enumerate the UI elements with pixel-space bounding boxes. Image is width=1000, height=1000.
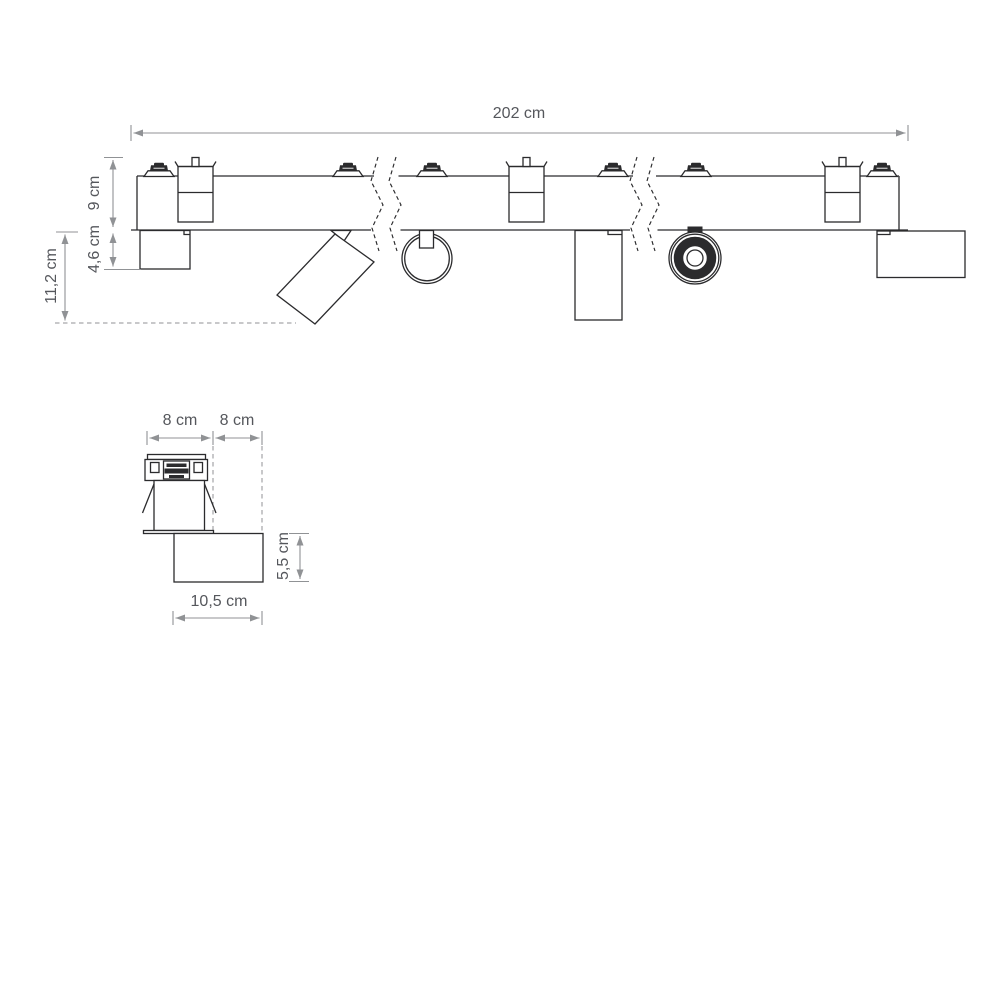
ring-fixture-side xyxy=(402,231,452,284)
spring-clip xyxy=(143,484,155,513)
driver-box-right xyxy=(877,231,965,278)
mount-clip xyxy=(867,163,897,177)
fixture-top-cap xyxy=(148,455,206,460)
dimension-label-detail-right-width: 8 cm xyxy=(220,412,255,429)
break-mark xyxy=(371,157,401,251)
mount-clip xyxy=(417,163,447,177)
mount-clip xyxy=(598,163,628,177)
mount-clip xyxy=(144,163,174,177)
track-connector xyxy=(822,158,863,223)
dimension-label-driver-width: 10,5 cm xyxy=(191,593,248,610)
main-side-view: 202 cm xyxy=(43,105,965,324)
dimension-label-track-length: 202 cm xyxy=(493,105,545,122)
track-connector xyxy=(506,158,547,223)
driver-box-detail xyxy=(174,534,263,583)
dimension-recess-height: 4,6 cm xyxy=(86,225,141,273)
dimension-driver-width: 10,5 cm xyxy=(173,593,262,625)
dimension-label-recess-height: 4,6 cm xyxy=(86,225,103,273)
dimension-track-length: 202 cm xyxy=(131,105,908,141)
fixture-body xyxy=(154,481,205,531)
mount-clip xyxy=(333,163,363,177)
dimension-label-detail-left-width: 8 cm xyxy=(163,412,198,429)
break-mark xyxy=(630,157,659,251)
dimension-label-driver-height: 5,5 cm xyxy=(275,532,292,580)
track-connectors xyxy=(175,158,863,223)
spot-fixture-front xyxy=(669,227,721,285)
dimension-label-total-depth: 11,2 cm xyxy=(43,248,60,304)
recessed-fixture-detail xyxy=(143,455,217,534)
mount-clip xyxy=(681,163,711,177)
track-connector xyxy=(175,158,216,223)
fixtures xyxy=(140,227,965,325)
detail-front-view: 8 cm 8 cm 5,5 xyxy=(143,412,310,625)
dimension-label-track-height: 9 cm xyxy=(86,176,103,211)
technical-drawing-page: 202 cm xyxy=(0,0,1000,1000)
dimension-track-height: 9 cm xyxy=(86,158,123,228)
dimension-driver-height: 5,5 cm xyxy=(275,532,309,582)
spring-clip xyxy=(205,484,217,513)
pendant-fixture-rect xyxy=(575,231,622,321)
track-lighting-dimension-drawing: 202 cm xyxy=(0,0,1000,1000)
spot-fixture-angled xyxy=(277,231,374,325)
driver-box-left xyxy=(140,231,190,270)
